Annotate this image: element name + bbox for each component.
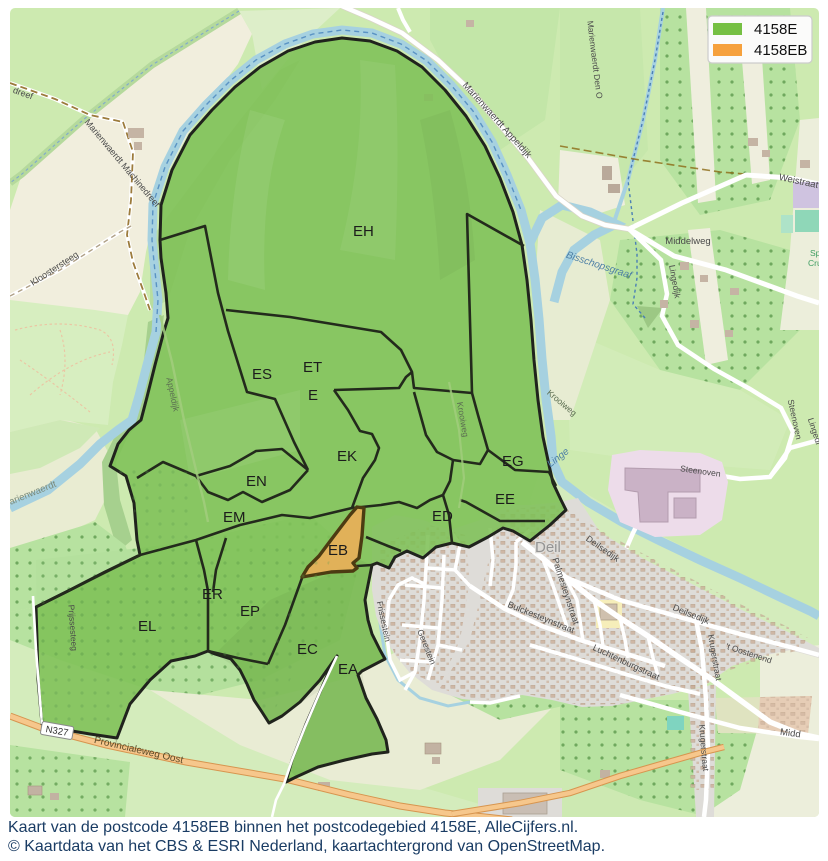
svg-text:EB: EB — [328, 542, 348, 559]
svg-text:EP: EP — [240, 603, 260, 620]
svg-text:EM: EM — [223, 509, 246, 526]
svg-text:Cru: Cru — [808, 258, 822, 268]
svg-text:4158E: 4158E — [754, 21, 797, 38]
svg-text:4158EB: 4158EB — [754, 42, 807, 59]
svg-text:EE: EE — [495, 491, 515, 508]
svg-text:EC: EC — [297, 641, 318, 658]
svg-text:EA: EA — [338, 661, 358, 678]
svg-text:EN: EN — [246, 473, 267, 490]
svg-text:E: E — [308, 387, 318, 404]
svg-text:ET: ET — [303, 359, 322, 376]
svg-text:Middelweg: Middelweg — [665, 236, 710, 247]
svg-text:EG: EG — [502, 453, 524, 470]
svg-text:EK: EK — [337, 448, 357, 465]
svg-text:Deil: Deil — [535, 539, 561, 556]
svg-text:EL: EL — [138, 618, 156, 635]
svg-text:EH: EH — [353, 223, 374, 240]
svg-text:ED: ED — [432, 508, 453, 525]
svg-text:Sp: Sp — [810, 248, 821, 258]
svg-text:ER: ER — [202, 586, 223, 603]
svg-text:ES: ES — [252, 366, 272, 383]
